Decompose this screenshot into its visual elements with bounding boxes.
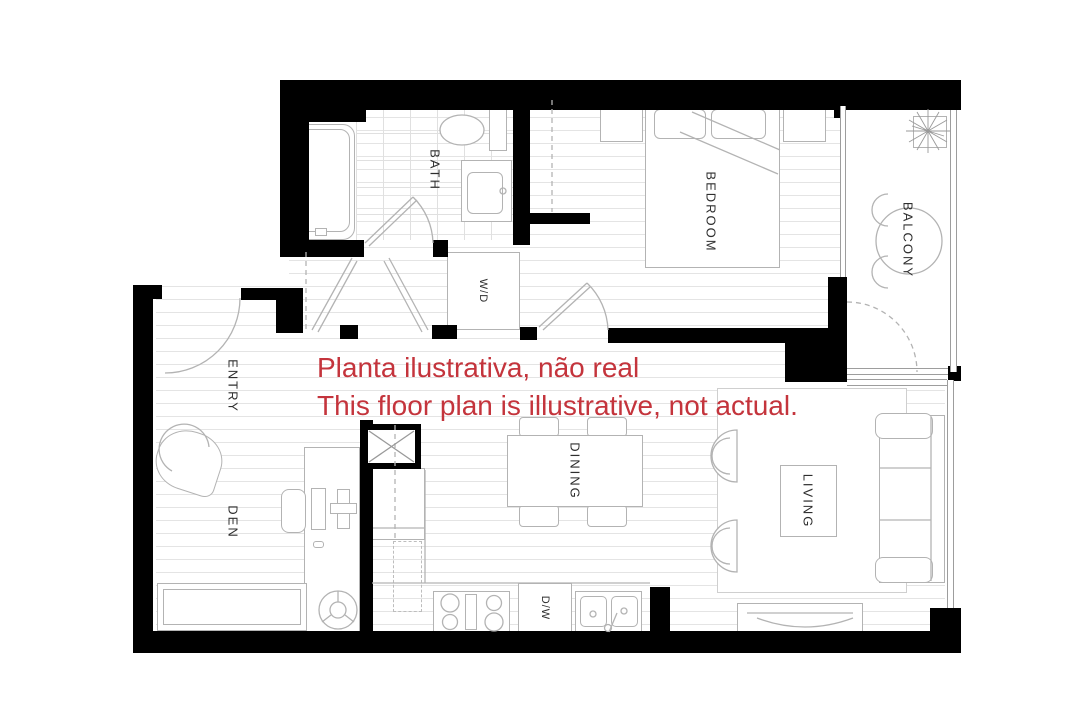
fridge bbox=[372, 468, 425, 540]
wall-bath-south-stub bbox=[433, 240, 448, 257]
room-label-bath: BATH bbox=[428, 149, 443, 191]
wall-hall-stub-left bbox=[340, 325, 358, 339]
floor-plan: BATH W/D BEDROOM BALCONY ENTRY DEN DININ… bbox=[0, 0, 1080, 720]
wall-bottom bbox=[133, 631, 961, 653]
den-desk-chair bbox=[281, 489, 306, 533]
balcony-rail-east bbox=[950, 110, 957, 372]
pillow-left bbox=[654, 109, 706, 139]
bathtub-drain bbox=[315, 228, 327, 236]
wall-bath-west bbox=[280, 106, 309, 247]
wall-entry-east bbox=[276, 288, 303, 333]
den-shelf-horizontal bbox=[330, 503, 357, 514]
stove-control-panel bbox=[465, 594, 477, 630]
room-label-living: LIVING bbox=[801, 474, 816, 529]
wall-bedroom-closet-stub bbox=[530, 213, 590, 224]
wall-hall-stub-bedroom bbox=[520, 327, 537, 340]
wall-top bbox=[280, 80, 961, 110]
wall-bath-east bbox=[513, 90, 530, 245]
pillow-right bbox=[711, 109, 766, 139]
balcony-planter bbox=[913, 116, 947, 148]
wall-se-corner bbox=[930, 608, 961, 653]
den-credenza-inner bbox=[163, 589, 301, 625]
sofa-arm-bottom bbox=[875, 557, 933, 583]
wall-hall-stub-right bbox=[432, 325, 457, 339]
room-label-den: DEN bbox=[226, 505, 241, 538]
wall-left-top-stub bbox=[133, 285, 162, 299]
kitchen-upper-cabinet bbox=[393, 541, 422, 612]
disclaimer-line-1: Planta ilustrativa, não real bbox=[317, 353, 639, 383]
window-living-north bbox=[847, 379, 947, 386]
mechanical-shaft bbox=[362, 424, 421, 469]
kitchen-sink-bowl-right bbox=[611, 596, 638, 627]
balcony-rail-south bbox=[847, 368, 948, 375]
wall-bath-south bbox=[280, 240, 364, 257]
tv-console bbox=[737, 603, 863, 634]
window-bedroom-balcony bbox=[840, 106, 846, 277]
den-monitor bbox=[311, 488, 326, 530]
den-desk bbox=[304, 447, 360, 633]
window-living-east bbox=[947, 380, 954, 608]
room-label-washer-dryer: W/D bbox=[477, 279, 489, 303]
room-label-entry: ENTRY bbox=[226, 359, 241, 413]
wall-bedroom-se-block bbox=[785, 330, 847, 382]
wall-bedroom-east bbox=[828, 277, 847, 332]
disclaimer-line-2: This floor plan is illustrative, not act… bbox=[317, 391, 798, 421]
den-mouse bbox=[313, 541, 324, 548]
sofa-arm-top bbox=[875, 413, 933, 439]
wall-kitchen-east-stub bbox=[650, 587, 670, 631]
toilet-tank bbox=[489, 109, 507, 151]
room-label-balcony: BALCONY bbox=[901, 202, 916, 278]
dining-chair-bottom-right bbox=[587, 505, 627, 527]
dining-chair-bottom-left bbox=[519, 505, 559, 527]
bath-sink bbox=[467, 172, 503, 214]
wall-entry-stub bbox=[241, 288, 276, 300]
room-label-dining: DINING bbox=[568, 442, 583, 500]
room-label-bedroom: BEDROOM bbox=[704, 171, 719, 252]
kitchen-sink-bowl-left bbox=[580, 596, 607, 627]
wall-left bbox=[133, 285, 153, 653]
room-label-dishwasher: D/W bbox=[539, 596, 551, 620]
